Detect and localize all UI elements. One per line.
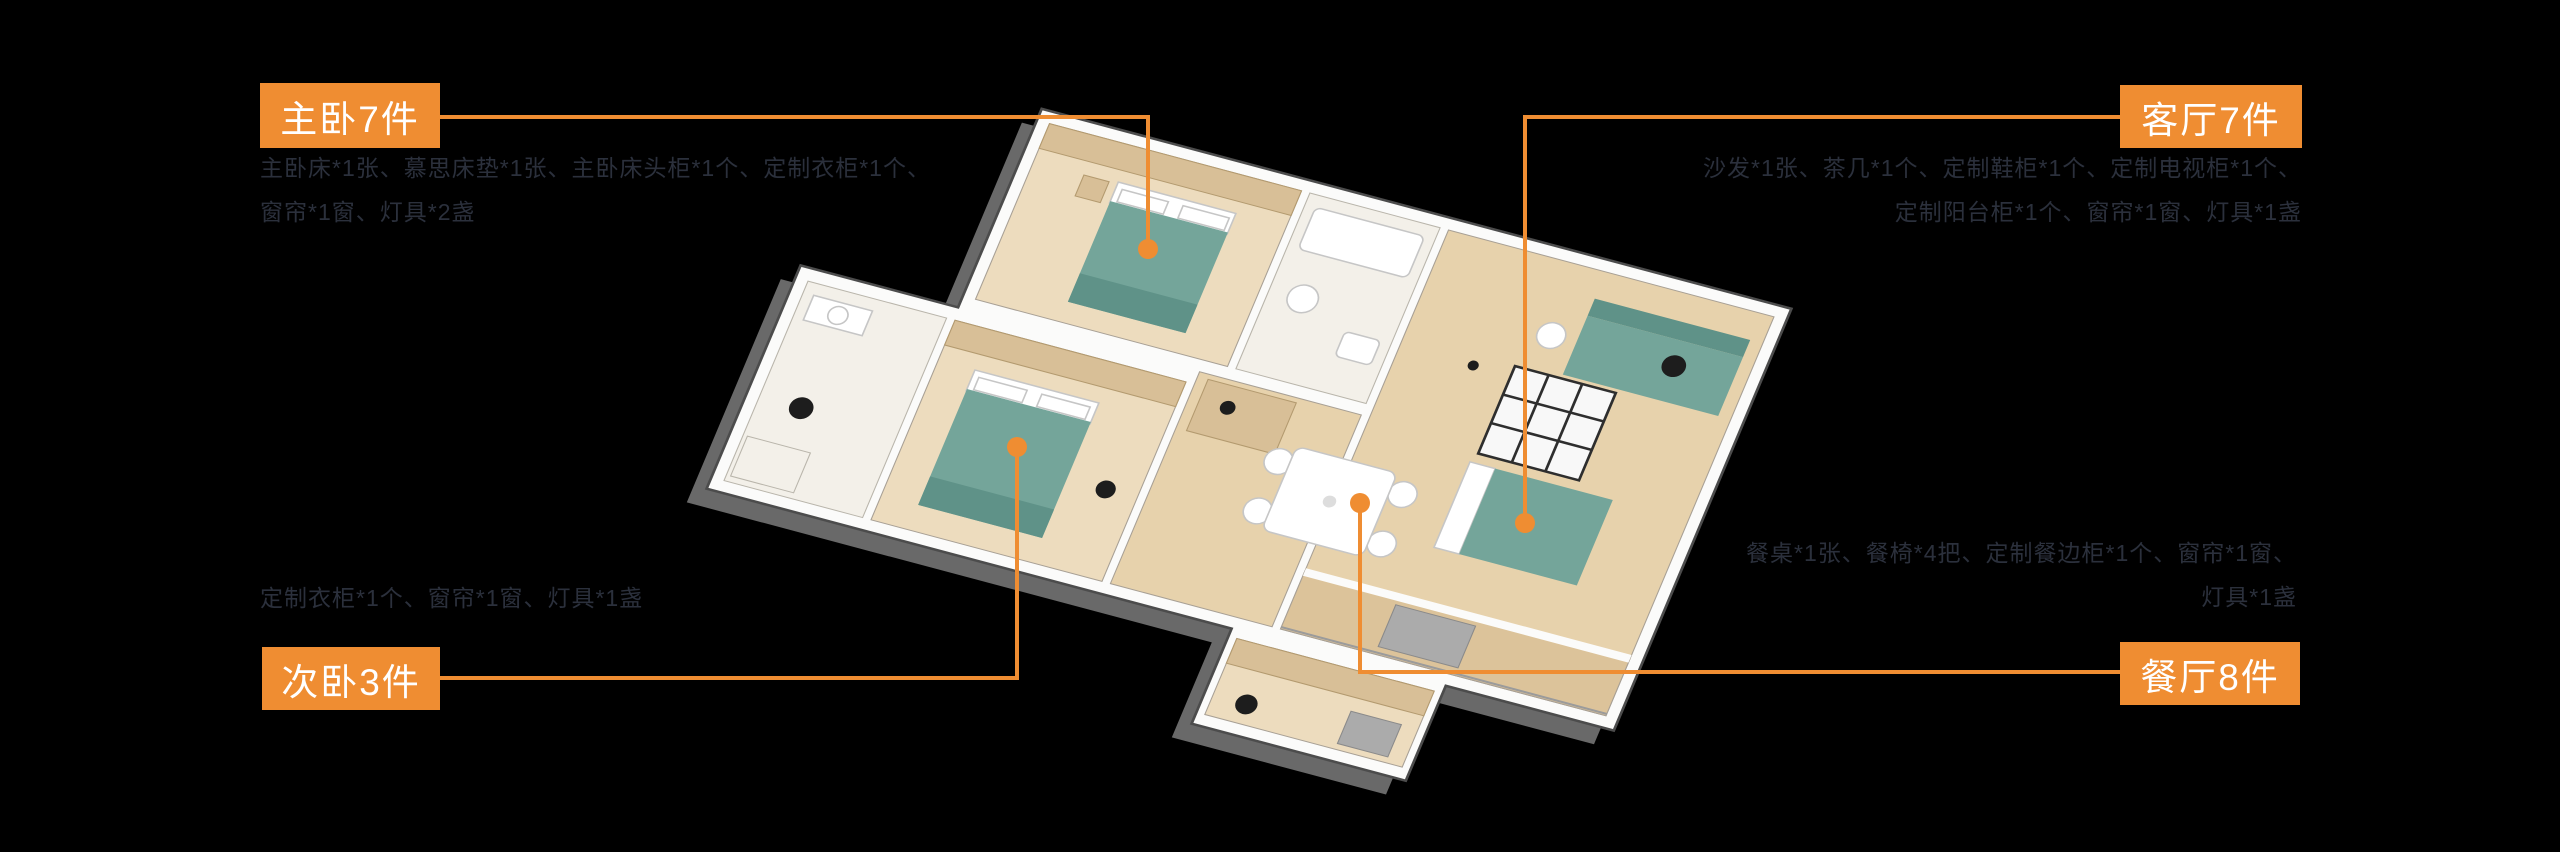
tag-living-room[interactable]: 客厅7件 <box>2120 85 2302 148</box>
second-bedroom-items: 定制衣柜*1个、窗帘*1窗、灯具*1盏 <box>260 576 643 620</box>
tag-dining-room[interactable]: 餐厅8件 <box>2120 642 2300 705</box>
node-master-bedroom <box>1138 239 1158 259</box>
living-room-items-line1: 沙发*1张、茶几*1个、定制鞋柜*1个、定制电视柜*1个、 <box>1703 146 2302 190</box>
tag-master-bedroom-label: 主卧7件 <box>280 89 420 143</box>
tag-living-room-label: 客厅7件 <box>2141 90 2281 144</box>
node-living-room <box>1515 513 1535 533</box>
master-bedroom-items: 主卧床*1张、慕思床垫*1张、主卧床头柜*1个、定制衣柜*1个、 窗帘*1窗、灯… <box>260 146 931 234</box>
node-dining-room <box>1350 493 1370 513</box>
node-second-bedroom <box>1007 437 1027 457</box>
annotated-floorplan-infographic: 主卧7件 主卧床*1张、慕思床垫*1张、主卧床头柜*1个、定制衣柜*1个、 窗帘… <box>0 0 2560 852</box>
master-bedroom-items-line2: 窗帘*1窗、灯具*2盏 <box>260 190 931 234</box>
tag-second-bedroom[interactable]: 次卧3件 <box>262 647 440 710</box>
tag-dining-room-label: 餐厅8件 <box>2140 647 2280 701</box>
living-room-items: 沙发*1张、茶几*1个、定制鞋柜*1个、定制电视柜*1个、 定制阳台柜*1个、窗… <box>1703 146 2302 234</box>
master-bedroom-items-line1: 主卧床*1张、慕思床垫*1张、主卧床头柜*1个、定制衣柜*1个、 <box>260 146 931 190</box>
dining-room-items-line2: 灯具*1盏 <box>1746 575 2297 619</box>
second-bedroom-items-line1: 定制衣柜*1个、窗帘*1窗、灯具*1盏 <box>260 576 643 620</box>
tag-second-bedroom-label: 次卧3件 <box>281 652 421 706</box>
living-room-items-line2: 定制阳台柜*1个、窗帘*1窗、灯具*1盏 <box>1703 190 2302 234</box>
dining-room-items-line1: 餐桌*1张、餐椅*4把、定制餐边柜*1个、窗帘*1窗、 <box>1746 531 2297 575</box>
dining-room-items: 餐桌*1张、餐椅*4把、定制餐边柜*1个、窗帘*1窗、 灯具*1盏 <box>1746 531 2297 619</box>
tag-master-bedroom[interactable]: 主卧7件 <box>260 83 440 148</box>
